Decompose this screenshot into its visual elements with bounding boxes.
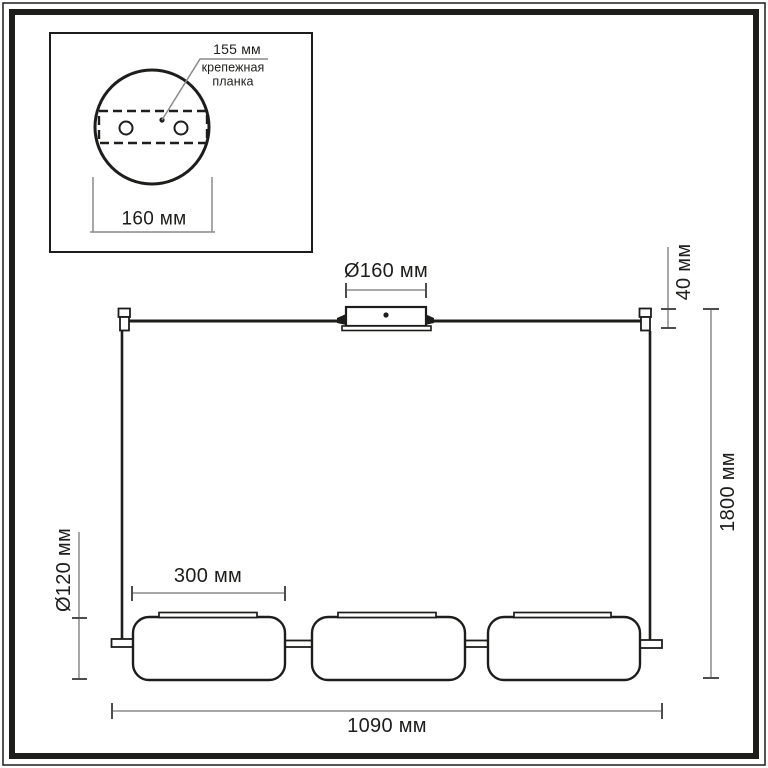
label-hole-spacing: 155 мм <box>213 42 261 56</box>
label-canopy-height: 40 мм <box>674 244 694 301</box>
adjuster-cap-left <box>119 309 131 318</box>
label-shade-width: 300 мм <box>174 566 242 586</box>
adjuster-cap-right <box>640 309 652 318</box>
label-mount-plate-line1: крепежная <box>202 61 265 75</box>
label-mount-plate: крепежная планка <box>202 61 265 90</box>
end-bracket-right <box>640 640 663 648</box>
canopy-base-plate <box>342 326 431 331</box>
drawing-canvas <box>0 0 768 768</box>
technical-drawing: 155 мм крепежная планка 160 мм Ø160 мм 4… <box>0 0 768 768</box>
label-mount-plate-line2: планка <box>202 75 265 89</box>
shade-strip-2 <box>338 613 436 618</box>
lampshade-1 <box>133 617 285 680</box>
end-bracket-left <box>112 639 134 647</box>
connector-rod-2 <box>463 641 490 648</box>
label-overall-width: 1090 мм <box>347 716 427 736</box>
label-canopy-diameter: Ø160 мм <box>344 261 428 281</box>
label-shade-height: Ø120 мм <box>54 528 74 612</box>
canopy-wedge-left <box>337 314 346 325</box>
label-overall-height: 1800 мм <box>718 452 738 532</box>
shade-strip-3 <box>514 613 611 618</box>
shade-strip-1 <box>159 613 257 618</box>
lampshade-3 <box>488 617 640 680</box>
adjuster-body-left <box>120 317 129 331</box>
label-inset-canopy-diameter: 160 мм <box>122 210 187 229</box>
lampshade-2 <box>312 617 465 680</box>
connector-rod-1 <box>283 641 313 648</box>
canopy-center-point <box>383 312 388 317</box>
adjuster-body-right <box>641 317 650 331</box>
